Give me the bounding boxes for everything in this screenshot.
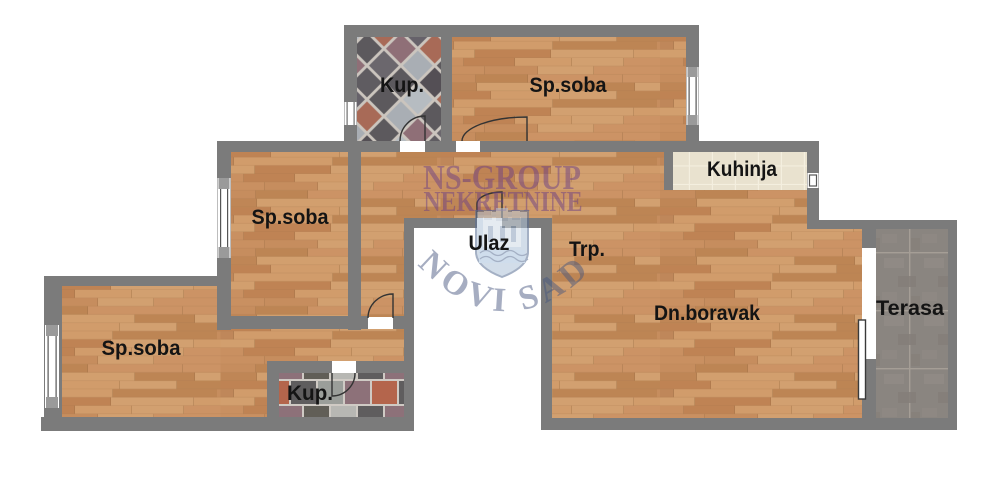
svg-text:Trp.: Trp. (569, 238, 605, 261)
svg-text:Ulaz: Ulaz (469, 232, 510, 255)
svg-text:Sp.soba: Sp.soba (102, 337, 181, 360)
svg-text:Kup.: Kup. (380, 74, 424, 97)
svg-text:Sp.soba: Sp.soba (252, 206, 329, 229)
svg-text:Kuhinja: Kuhinja (707, 158, 777, 181)
svg-text:Sp.soba: Sp.soba (530, 74, 607, 97)
svg-text:Dn.boravak: Dn.boravak (654, 302, 760, 325)
svg-text:Kup.: Kup. (287, 382, 333, 405)
svg-text:Terasa: Terasa (876, 297, 944, 320)
